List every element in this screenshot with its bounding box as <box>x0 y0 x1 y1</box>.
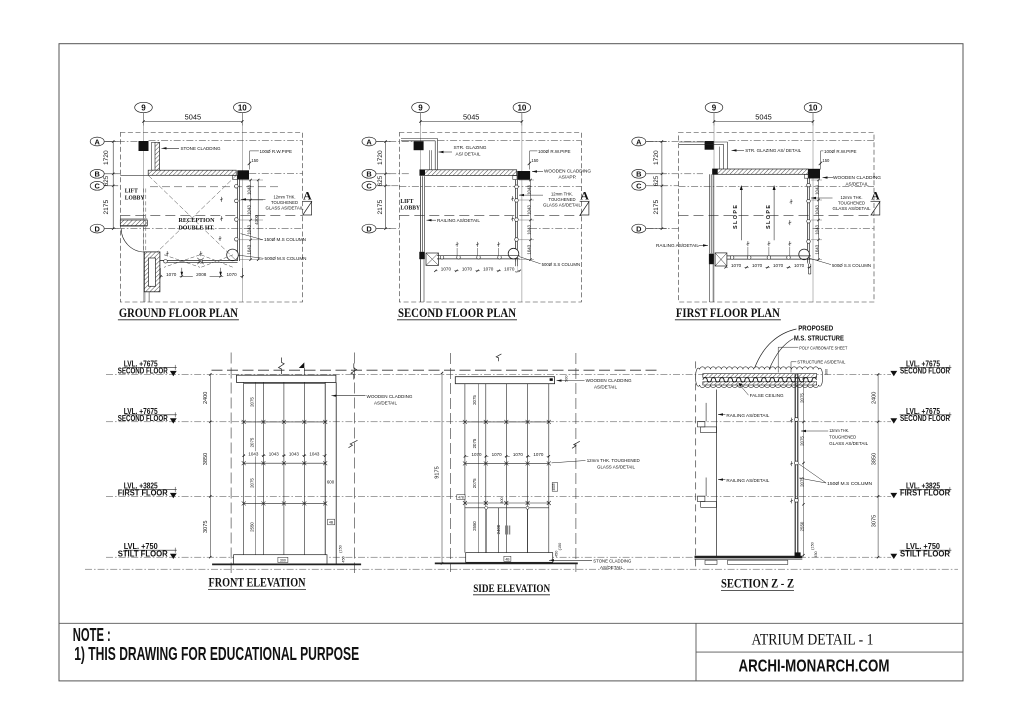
svg-text:2008: 2008 <box>196 272 207 277</box>
svg-text:5045: 5045 <box>463 113 479 122</box>
svg-text:LOBBY: LOBBY <box>125 195 145 201</box>
svg-text:1043: 1043 <box>814 244 819 254</box>
svg-text:RAILING AS/DETAIL: RAILING AS/DETAIL <box>726 413 770 418</box>
svg-text:2400: 2400 <box>496 524 501 534</box>
svg-text:150: 150 <box>822 158 830 163</box>
svg-text:(150: (150 <box>558 543 562 551</box>
svg-text:300: 300 <box>500 497 504 503</box>
svg-text:1070: 1070 <box>441 266 452 271</box>
svg-text:2175: 2175 <box>653 200 660 215</box>
svg-text:1043: 1043 <box>289 451 300 456</box>
svg-text:FIRST FLOOR PLAN: FIRST FLOOR PLAN <box>676 306 780 320</box>
svg-text:450: 450 <box>342 556 346 562</box>
svg-text:WOODEN CLADDING: WOODEN CLADDING <box>544 168 592 173</box>
svg-text:300: 300 <box>280 559 286 563</box>
svg-text:GLASS AS/DETAIL: GLASS AS/DETAIL <box>829 441 869 446</box>
svg-text:2075: 2075 <box>472 395 477 405</box>
svg-text:WOODEN CLADDING: WOODEN CLADDING <box>586 378 632 383</box>
svg-text:2075: 2075 <box>249 437 254 447</box>
svg-text:A: A <box>303 189 312 203</box>
svg-text:LOBBY: LOBBY <box>400 206 420 212</box>
svg-text:AS/APP.: AS/APP. <box>559 175 577 180</box>
svg-text:4B: 4B <box>329 521 334 525</box>
svg-text:1070: 1070 <box>513 452 524 457</box>
svg-text:2175: 2175 <box>103 200 110 215</box>
svg-text:(150: (150 <box>811 542 815 550</box>
svg-text:AS/ DETAIL: AS/ DETAIL <box>456 151 482 156</box>
svg-text:POLY CARBONATE SHEET: POLY CARBONATE SHEET <box>799 346 847 351</box>
svg-text:2550: 2550 <box>472 521 477 531</box>
svg-text:100Ø R.W.PIPE: 100Ø R.W.PIPE <box>260 149 293 154</box>
svg-text:10: 10 <box>517 103 526 112</box>
svg-text:AS/DETAIL: AS/DETAIL <box>600 565 623 570</box>
svg-text:1720: 1720 <box>103 150 110 165</box>
svg-text:4300: 4300 <box>254 214 259 224</box>
svg-text:STILT FLOOR: STILT FLOOR <box>118 549 168 558</box>
svg-text:1070: 1070 <box>483 266 494 271</box>
svg-text:1043: 1043 <box>814 185 819 195</box>
svg-text:500Ø M.S COLUMN: 500Ø M.S COLUMN <box>265 256 307 261</box>
svg-text:S L O P E: S L O P E <box>733 205 739 229</box>
svg-text:1043: 1043 <box>248 451 259 456</box>
svg-text:3075: 3075 <box>871 515 877 527</box>
svg-text:478: 478 <box>458 496 464 500</box>
svg-text:2400: 2400 <box>203 392 209 404</box>
svg-text:A: A <box>636 137 642 146</box>
svg-text:2075: 2075 <box>249 478 254 488</box>
svg-text:A: A <box>366 137 372 146</box>
svg-text:4005: 4005 <box>552 483 556 490</box>
svg-text:DOUBLE HT.: DOUBLE HT. <box>179 225 215 232</box>
svg-text:AS/DETAIL: AS/DETAIL <box>374 400 397 405</box>
svg-text:1043: 1043 <box>814 205 819 215</box>
svg-text:SIDE ELEVATION: SIDE ELEVATION <box>473 581 550 595</box>
svg-text:GLASS AS/DETAIL: GLASS AS/DETAIL <box>833 206 871 211</box>
svg-text:9: 9 <box>141 103 146 112</box>
svg-text:1043: 1043 <box>526 244 531 254</box>
svg-text:RECEPTION: RECEPTION <box>179 217 215 224</box>
svg-text:3075: 3075 <box>203 520 209 532</box>
svg-text:AS/DETAIL: AS/DETAIL <box>594 384 617 389</box>
svg-text:2075: 2075 <box>799 436 804 446</box>
svg-text:625: 625 <box>103 175 110 186</box>
svg-text:10: 10 <box>238 103 247 112</box>
svg-text:450: 450 <box>555 551 559 557</box>
svg-text:(150: (150 <box>339 545 343 553</box>
svg-text:SECOND FLOOR: SECOND FLOOR <box>118 414 168 423</box>
svg-text:D: D <box>95 225 101 234</box>
svg-text:2550: 2550 <box>249 522 254 532</box>
svg-text:625: 625 <box>377 175 384 186</box>
svg-text:B: B <box>636 170 641 179</box>
svg-text:STR. GLAZING AS/ DETAIL: STR. GLAZING AS/ DETAIL <box>745 148 801 153</box>
svg-text:1070: 1070 <box>166 272 177 277</box>
svg-text:LIFT: LIFT <box>400 199 413 205</box>
svg-text:D: D <box>366 225 372 234</box>
svg-text:1070: 1070 <box>794 263 805 268</box>
svg-text:1043: 1043 <box>246 205 251 215</box>
svg-text:10: 10 <box>809 103 818 112</box>
svg-text:12mm THK.: 12mm THK. <box>829 428 849 433</box>
svg-text:1043: 1043 <box>526 205 531 215</box>
svg-text:C: C <box>95 182 101 191</box>
svg-text:S L O P E: S L O P E <box>766 205 772 229</box>
svg-text:150: 150 <box>531 158 539 163</box>
svg-text:SECOND FLOOR PLAN: SECOND FLOOR PLAN <box>398 306 516 320</box>
svg-text:ARCHI-MONARCH.COM: ARCHI-MONARCH.COM <box>739 656 890 676</box>
svg-text:625: 625 <box>653 175 660 186</box>
svg-text:500Ø S.S COLUMN: 500Ø S.S COLUMN <box>542 262 581 267</box>
svg-text:1070: 1070 <box>492 452 503 457</box>
svg-text:STONE CLADDING: STONE CLADDING <box>181 146 221 151</box>
svg-text:150Ø M.S COLUMN: 150Ø M.S COLUMN <box>827 481 872 486</box>
svg-text:FALSE CEILING: FALSE CEILING <box>750 393 784 398</box>
svg-text:STILT FLOOR: STILT FLOOR <box>900 549 950 558</box>
svg-text:LIFT: LIFT <box>125 188 138 194</box>
svg-text:1070: 1070 <box>731 263 742 268</box>
svg-text:M.S. STRUCTURE: M.S. STRUCTURE <box>794 335 844 342</box>
svg-text:B: B <box>366 170 371 179</box>
svg-text:9175: 9175 <box>435 466 441 478</box>
svg-text:2075: 2075 <box>472 478 477 488</box>
svg-text:9: 9 <box>418 103 423 112</box>
svg-text:1070: 1070 <box>226 272 237 277</box>
svg-text:GLASS AS/DETAIL: GLASS AS/DETAIL <box>543 203 581 208</box>
svg-text:STONE CLADDING: STONE CLADDING <box>593 558 631 563</box>
svg-text:1070: 1070 <box>773 263 784 268</box>
svg-text:SECOND FLOOR: SECOND FLOOR <box>900 367 950 376</box>
svg-text:WOODEN CLADDING: WOODEN CLADDING <box>833 175 882 180</box>
svg-text:1070: 1070 <box>533 452 544 457</box>
svg-text:SECTION Z - Z: SECTION Z - Z <box>721 577 794 591</box>
svg-text:12mm THK.: 12mm THK. <box>841 195 863 200</box>
svg-text:12mm THK.: 12mm THK. <box>274 195 296 200</box>
svg-text:RAILING AS/DETAIL: RAILING AS/DETAIL <box>726 478 770 483</box>
svg-text:FRONT ELEVATION: FRONT ELEVATION <box>209 576 307 590</box>
svg-text:FIRST FLOOR: FIRST FLOOR <box>118 489 168 498</box>
svg-text:5045: 5045 <box>185 113 201 122</box>
svg-text:3850: 3850 <box>871 453 877 465</box>
svg-text:GLASS AS/DETAIL: GLASS AS/DETAIL <box>597 465 635 470</box>
svg-text:TOUGHENED: TOUGHENED <box>271 200 299 205</box>
svg-text:FIRST FLOOR: FIRST FLOOR <box>900 489 950 498</box>
svg-text:A: A <box>580 189 589 203</box>
svg-text:1070: 1070 <box>471 452 482 457</box>
svg-text:300: 300 <box>825 369 829 375</box>
svg-text:12mm THK. TOUGHENED: 12mm THK. TOUGHENED <box>587 458 641 463</box>
svg-text:STR. GLAZING: STR. GLAZING <box>454 145 488 150</box>
svg-text:STRUCTURE AS/DETAIL: STRUCTURE AS/DETAIL <box>797 360 846 365</box>
svg-text:2075: 2075 <box>249 397 254 407</box>
svg-text:1) THIS DRAWING FOR EDUCATIONA: 1) THIS DRAWING FOR EDUCATIONAL PURPOSE <box>74 643 359 664</box>
svg-text:A: A <box>95 137 101 146</box>
svg-text:C: C <box>366 182 372 191</box>
svg-text:1070: 1070 <box>504 266 515 271</box>
svg-text:GROUND FLOOR PLAN: GROUND FLOOR PLAN <box>119 306 238 320</box>
svg-text:SECOND FLOOR: SECOND FLOOR <box>900 414 950 423</box>
svg-text:B: B <box>95 170 100 179</box>
svg-text:ATRIUM DETAIL - 1: ATRIUM DETAIL - 1 <box>752 631 874 648</box>
svg-text:2550: 2550 <box>799 521 804 531</box>
svg-text:AS/DETAIL: AS/DETAIL <box>846 182 869 187</box>
svg-text:1043: 1043 <box>309 451 320 456</box>
svg-text:450: 450 <box>814 551 818 557</box>
svg-text:SECOND FLOOR: SECOND FLOOR <box>118 367 168 376</box>
svg-text:2075: 2075 <box>799 393 804 403</box>
svg-text:1043: 1043 <box>246 244 251 254</box>
svg-text:2400: 2400 <box>871 392 877 404</box>
svg-text:1043: 1043 <box>246 185 251 195</box>
svg-text:D: D <box>636 225 642 234</box>
svg-text:1720: 1720 <box>377 150 384 165</box>
svg-text:2075: 2075 <box>472 438 477 448</box>
svg-text:WOODEN CLADDING: WOODEN CLADDING <box>367 394 413 399</box>
svg-text:1720: 1720 <box>653 150 660 165</box>
svg-text:12mm THK.: 12mm THK. <box>551 192 573 197</box>
svg-text:RAILING AS/DETAIL: RAILING AS/DETAIL <box>656 243 700 248</box>
svg-text:PROPOSED: PROPOSED <box>798 326 833 333</box>
svg-text:500Ø S.S COLUMN: 500Ø S.S COLUMN <box>832 263 871 268</box>
svg-text:3850: 3850 <box>203 453 209 465</box>
svg-text:GLASS AS/DETAIL: GLASS AS/DETAIL <box>266 206 304 211</box>
svg-text:NOTE :: NOTE : <box>73 625 111 645</box>
svg-text:1043: 1043 <box>269 451 280 456</box>
svg-text:600: 600 <box>327 479 335 484</box>
svg-text:1043: 1043 <box>814 224 819 234</box>
svg-text:RAILING AS/DETAIL: RAILING AS/DETAIL <box>437 218 481 223</box>
svg-text:A: A <box>871 189 880 203</box>
svg-text:4B: 4B <box>505 557 510 561</box>
svg-text:5045: 5045 <box>755 113 771 122</box>
svg-text:150: 150 <box>251 158 259 163</box>
svg-text:1070: 1070 <box>462 266 473 271</box>
svg-text:TOUGHENED: TOUGHENED <box>829 435 856 440</box>
svg-text:2175: 2175 <box>377 200 384 215</box>
svg-text:C: C <box>636 182 642 191</box>
svg-text:9: 9 <box>712 103 717 112</box>
svg-text:100Ø R.W.PIPE: 100Ø R.W.PIPE <box>824 149 857 154</box>
svg-text:1043: 1043 <box>526 185 531 195</box>
svg-text:1070: 1070 <box>752 263 763 268</box>
svg-text:100Ø R.W.PIPE: 100Ø R.W.PIPE <box>538 149 571 154</box>
svg-text:500: 500 <box>565 376 569 382</box>
svg-text:1043: 1043 <box>246 224 251 234</box>
svg-text:TOUGHENED: TOUGHENED <box>838 201 866 206</box>
svg-text:TOUGHENED: TOUGHENED <box>549 197 577 202</box>
svg-text:150Ø M.S COLUMN: 150Ø M.S COLUMN <box>264 237 306 242</box>
svg-text:1043: 1043 <box>526 224 531 234</box>
